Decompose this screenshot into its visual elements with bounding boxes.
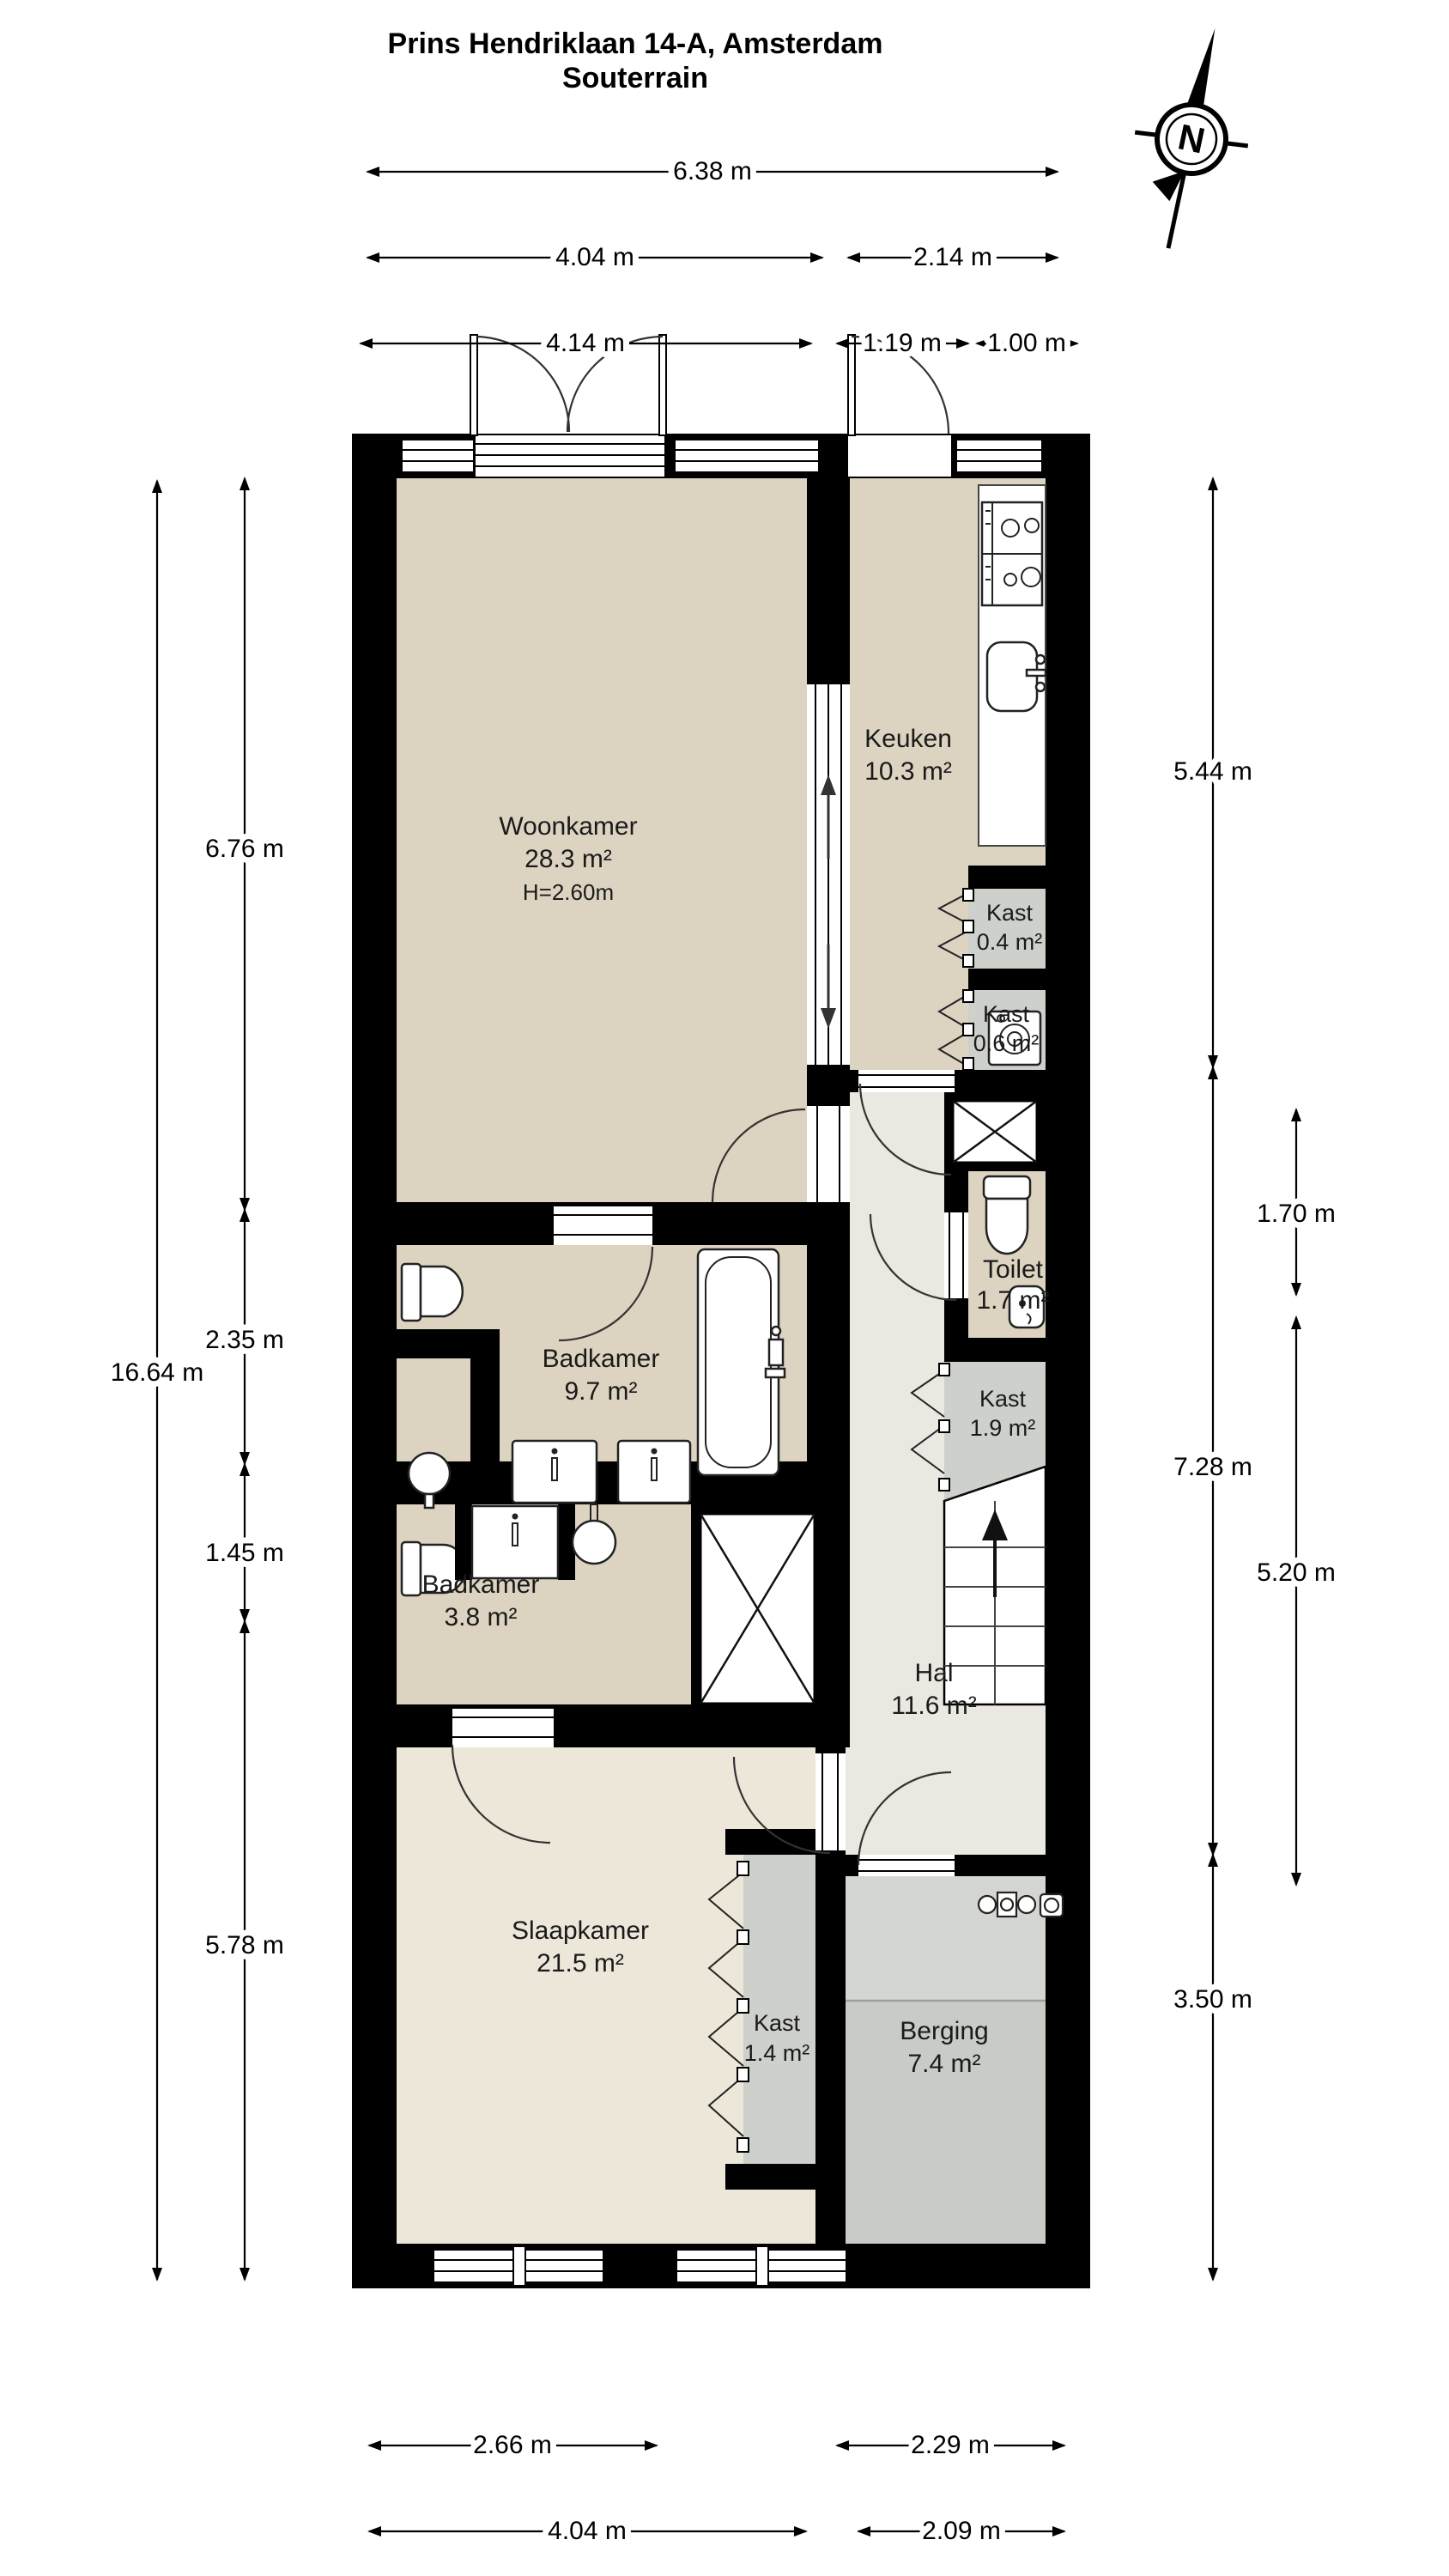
window-woonkamer-left	[402, 440, 474, 472]
dim-left-slaapkamer: 5.78 m	[205, 1931, 284, 1959]
dim-bottom-berging: 2.09 m	[922, 2517, 1001, 2545]
label-kast-06-area: 0.6 m²	[973, 1030, 1040, 1056]
room-keuken-corridor	[850, 866, 968, 1070]
plan-title: Prins Hendriklaan 14-A, Amsterdam	[388, 27, 883, 60]
dim-bottom-berging-inner: 2.29 m	[911, 2431, 990, 2459]
washbasin-badkamer-klein	[455, 1504, 575, 1580]
floorplan-page: Prins Hendriklaan 14-A, Amsterdam Souter…	[0, 0, 1449, 2576]
dim-right-stairs: 5.20 m	[1257, 1558, 1336, 1587]
shaft-hatched-bottom	[700, 1514, 815, 1704]
door-hal-keuken	[858, 1070, 955, 1092]
dim-right-keuken: 5.44 m	[1173, 757, 1252, 786]
label-kast-04-area: 0.4 m²	[977, 929, 1043, 955]
staircase	[944, 1467, 1046, 1704]
toilet-icon-badkamer-groot	[402, 1264, 463, 1321]
label-berging: Berging	[900, 2017, 988, 2045]
dim-left-badkamer-klein: 1.45 m	[205, 1539, 284, 1567]
door-keuken-outside	[848, 435, 951, 477]
dim-left-woonkamer: 6.76 m	[205, 835, 284, 863]
room-hal-c	[846, 1704, 1046, 1855]
label-kast-14-area: 1.4 m²	[744, 2040, 810, 2066]
label-woonkamer-area: 28.3 m²	[524, 845, 612, 873]
toilet-icon-toiletroom	[984, 1176, 1030, 1254]
room-hal-b	[850, 1362, 944, 1704]
label-toilet-area: 1.7 m²	[976, 1286, 1049, 1315]
top-facade	[402, 335, 1042, 477]
dim-left-badkamer-groot: 2.35 m	[205, 1326, 284, 1354]
room-hal-a	[850, 1092, 944, 1362]
label-kast-06: Kast	[983, 1001, 1030, 1027]
label-kast-04: Kast	[986, 900, 1034, 926]
label-kast-19-area: 1.9 m²	[970, 1415, 1036, 1441]
dim-right-berging: 3.50 m	[1173, 1985, 1252, 2014]
compass-rose: N	[1113, 16, 1270, 260]
label-badkamer-groot-area: 9.7 m²	[564, 1377, 637, 1406]
window-woonkamer-right	[675, 440, 819, 472]
dim-top-left: 4.04 m	[555, 243, 634, 271]
label-hal: Hal	[914, 1659, 953, 1687]
label-hal-area: 11.6 m²	[891, 1692, 976, 1720]
floorplan-canvas: Prins Hendriklaan 14-A, Amsterdam Souter…	[0, 0, 1449, 2576]
label-slaapkamer: Slaapkamer	[512, 1917, 649, 1945]
dim-top-woonkamer: 4.14 m	[546, 329, 625, 357]
label-berging-area: 7.4 m²	[907, 2050, 980, 2078]
dim-right-hal: 7.28 m	[1173, 1453, 1252, 1481]
label-keuken: Keuken	[864, 725, 952, 753]
dim-left-total: 16.64 m	[111, 1358, 203, 1387]
dim-top-right: 2.14 m	[913, 243, 992, 271]
stove-icon	[982, 502, 1042, 605]
door-hal-berging	[858, 1855, 955, 1876]
label-badkamer-klein-area: 3.8 m²	[444, 1603, 517, 1631]
door-hal-toilet	[944, 1212, 968, 1298]
dim-top-counter: 1.00 m	[987, 329, 1066, 357]
label-slaapkamer-area: 21.5 m²	[537, 1949, 624, 1978]
dim-top-total: 6.38 m	[673, 157, 752, 185]
dim-top-keuken: 1.19 m	[863, 329, 942, 357]
dim-right-toilet: 1.70 m	[1257, 1200, 1336, 1228]
shaft-hatched-top	[953, 1101, 1037, 1163]
label-woonkamer-height: H=2.60m	[523, 879, 614, 905]
label-kast-14: Kast	[754, 2010, 801, 2036]
label-badkamer-klein: Badkamer	[422, 1571, 540, 1599]
kitchen-counter	[979, 485, 1046, 846]
glass-partition-keuken	[807, 684, 850, 1065]
door-hal-slaapkamer	[815, 1753, 846, 1850]
label-keuken-area: 10.3 m²	[864, 757, 952, 786]
door-badkamer-klein	[452, 1709, 554, 1747]
label-badkamer-groot: Badkamer	[543, 1345, 660, 1373]
dim-bottom-slaapkamer: 4.04 m	[548, 2517, 627, 2545]
window-keuken	[956, 440, 1042, 472]
label-kast-19: Kast	[979, 1386, 1027, 1412]
room-kast-14	[743, 1855, 815, 2164]
label-toilet: Toilet	[983, 1255, 1044, 1284]
door-badkamer-groot	[554, 1206, 652, 1245]
door-woonkamer-hal	[807, 1106, 850, 1202]
plan-subtitle: Souterrain	[562, 62, 708, 94]
dim-bottom-slaapkamer-bay: 2.66 m	[473, 2431, 552, 2459]
bathtub-icon	[698, 1249, 785, 1475]
kitchen-sink-icon	[987, 642, 1046, 711]
label-woonkamer: Woonkamer	[499, 812, 637, 841]
